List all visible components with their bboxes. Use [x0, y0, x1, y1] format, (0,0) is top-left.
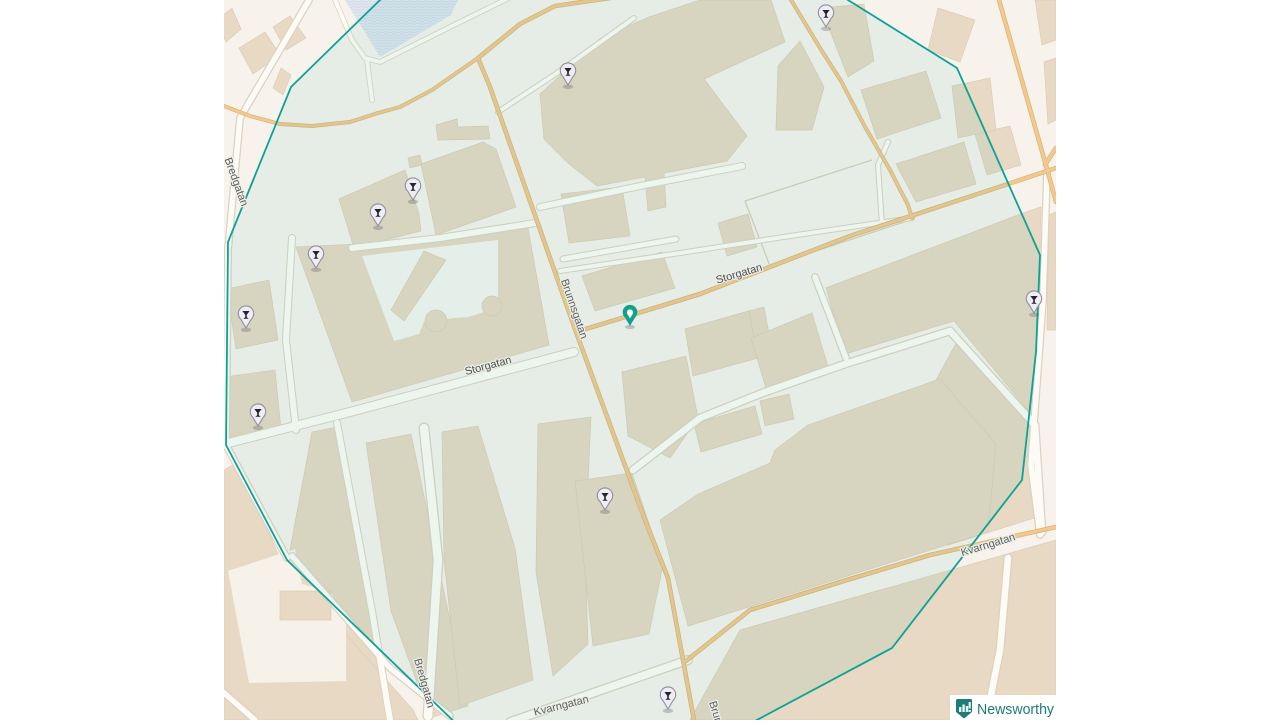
svg-text:Newsworthy: Newsworthy — [977, 702, 1055, 718]
